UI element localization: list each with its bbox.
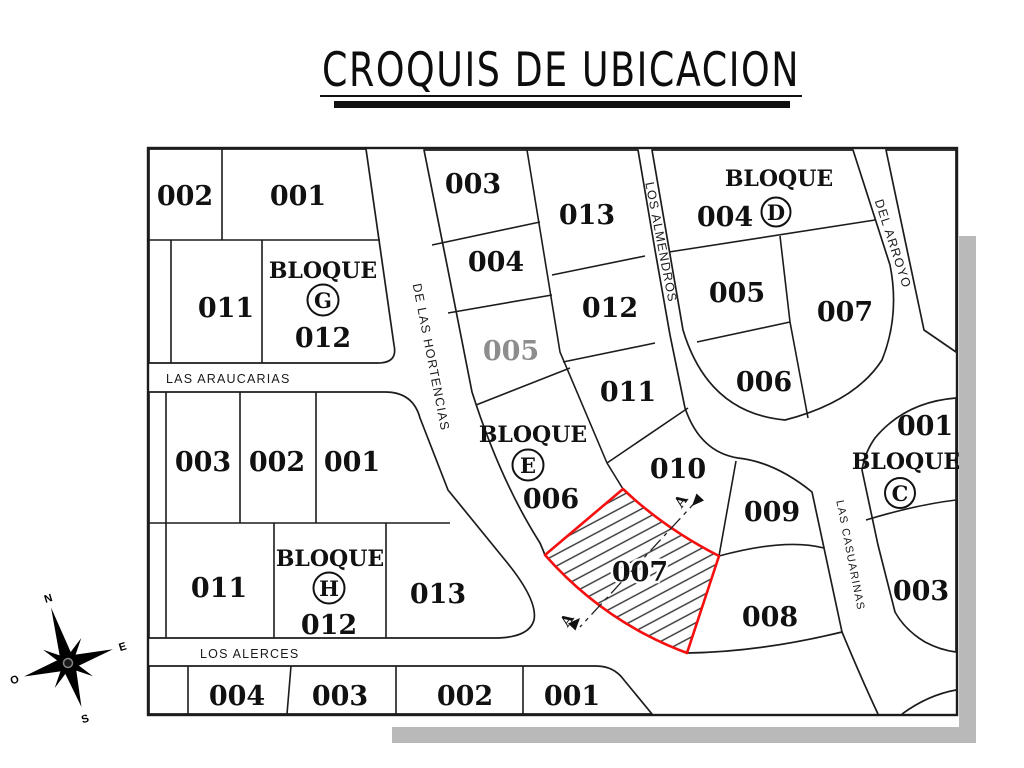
lot-label-e-005: 005 <box>483 336 539 367</box>
street-label-las-araucarias: LAS ARAUCARIAS <box>166 372 290 386</box>
lot-label-h-002: 002 <box>249 447 305 478</box>
street-label-los-alerces: LOS ALERCES <box>200 647 299 661</box>
block-h-title: BLOQUE <box>276 546 384 572</box>
lot-label-south-001: 001 <box>544 681 600 712</box>
block-e-letter: E <box>520 453 536 478</box>
lot-label-h-001: 001 <box>324 447 380 478</box>
compass-s: S <box>80 713 91 727</box>
compass-n: N <box>43 592 54 606</box>
lot-label-d-004: 004 <box>697 202 753 233</box>
block-c-letter: C <box>892 481 909 506</box>
block-c-title: BLOQUE <box>852 449 960 475</box>
lot-label-e-004: 004 <box>468 247 524 278</box>
lot-label-h-013: 013 <box>410 579 466 610</box>
lot-label-g-001: 001 <box>270 181 326 212</box>
block-g-letter: G <box>314 288 332 313</box>
lot-label-g-011: 011 <box>198 293 254 324</box>
page-title: CROQUIS DE UBICACION <box>322 43 800 98</box>
lot-label-h-011: 011 <box>191 573 247 604</box>
block-d-title: BLOQUE <box>725 166 833 192</box>
lot-label-e-009: 009 <box>744 497 800 528</box>
lot-label-e-006: 006 <box>523 484 579 515</box>
block-d-letter: D <box>767 200 785 225</box>
lot-label-h-003: 003 <box>175 447 231 478</box>
block-h-letter: H <box>319 576 339 601</box>
lot-label-d-005: 005 <box>709 278 765 309</box>
lot-label-g-012: 012 <box>295 323 351 354</box>
lot-label-d-006: 006 <box>736 367 792 398</box>
frame-shadow-right <box>959 236 976 739</box>
block-g-title: BLOQUE <box>269 258 377 284</box>
croquis-map: CROQUIS DE UBICACION 002 001 011 BLOQUE … <box>0 0 1024 768</box>
lot-label-c-001: 001 <box>897 411 953 442</box>
lot-label-d-007: 007 <box>817 297 873 328</box>
compass-e: E <box>118 640 129 654</box>
lot-label-south-003: 003 <box>312 681 368 712</box>
lot-label-e-013: 013 <box>559 200 615 231</box>
lot-label-south-004: 004 <box>209 681 265 712</box>
title-underline-thick <box>334 101 790 108</box>
lot-label-e-010: 010 <box>650 454 706 485</box>
compass-rose: N E S O <box>0 575 145 742</box>
frame-shadow-bottom <box>392 727 976 743</box>
lot-label-e-003: 003 <box>445 169 501 200</box>
block-e-title: BLOQUE <box>479 422 587 448</box>
lot-label-e-011: 011 <box>600 377 656 408</box>
lot-label-h-012: 012 <box>301 610 357 641</box>
lot-label-e-008: 008 <box>742 602 798 633</box>
block-south-row: 004 003 002 001 <box>149 666 652 714</box>
lot-label-g-002: 002 <box>157 181 213 212</box>
block-g: 002 001 011 BLOQUE G 012 <box>149 149 395 363</box>
lot-label-south-002: 002 <box>437 681 493 712</box>
lot-label-c-003: 003 <box>893 576 949 607</box>
lot-label-e-012: 012 <box>582 293 638 324</box>
compass-o: O <box>9 673 21 687</box>
